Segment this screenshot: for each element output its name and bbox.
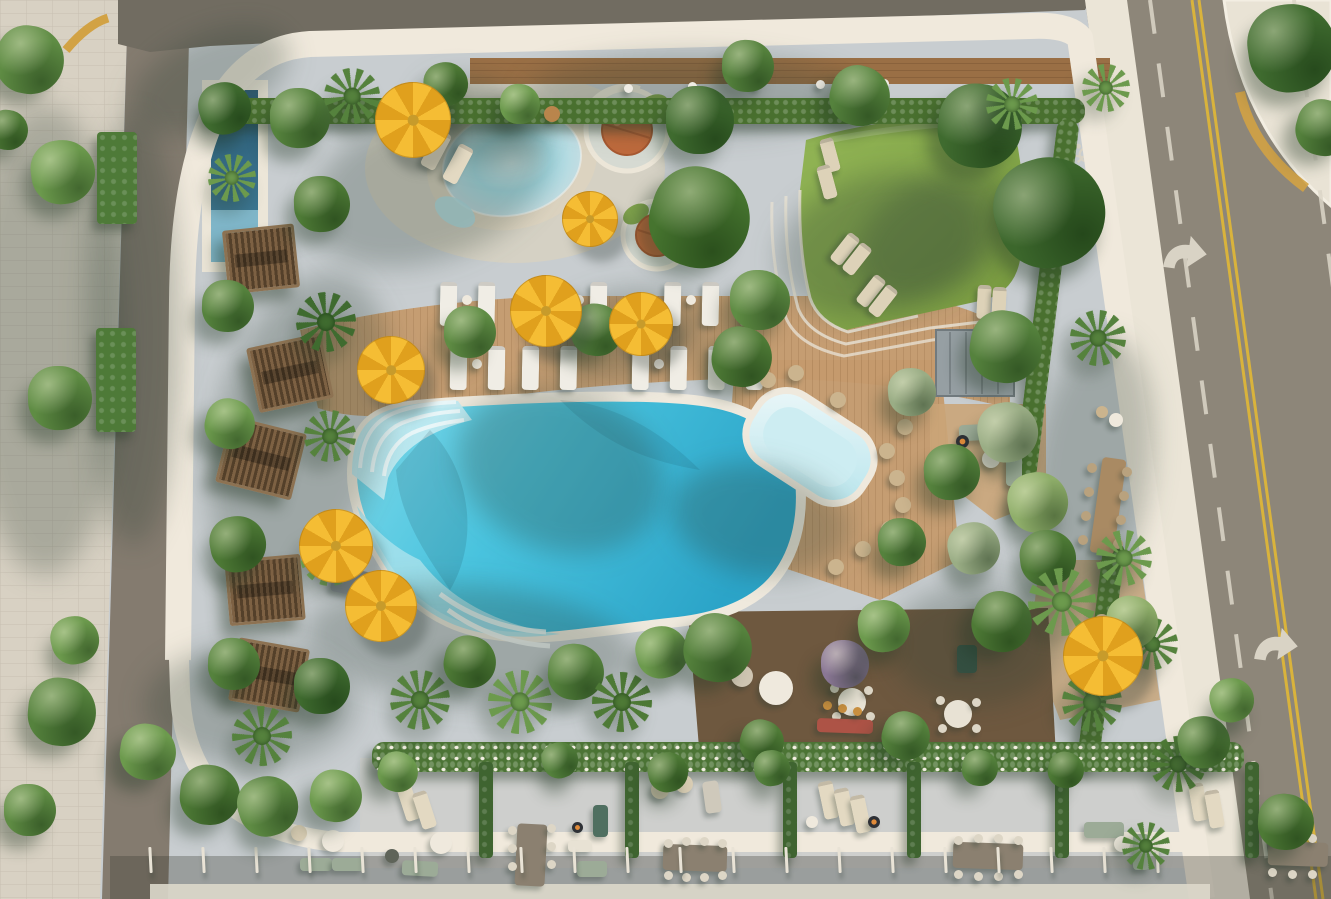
chair — [864, 686, 873, 695]
railing-post — [837, 847, 841, 873]
cabana-pergola — [228, 637, 310, 713]
chair — [974, 834, 983, 843]
sofa — [1084, 822, 1124, 838]
balcony-railing — [177, 600, 1204, 842]
chair — [664, 839, 673, 848]
tree-shadow — [405, 60, 555, 180]
palm-tree — [297, 523, 363, 589]
tree — [960, 748, 1001, 789]
tree — [419, 57, 472, 110]
tree — [307, 767, 366, 826]
sun-lounger — [819, 137, 841, 173]
center-line-yellow — [1199, 0, 1323, 899]
umbrella — [345, 570, 417, 642]
railing-post — [678, 847, 682, 873]
palm-tree — [487, 669, 553, 735]
tree — [922, 442, 982, 502]
chair — [879, 443, 895, 459]
chair — [855, 541, 871, 557]
chair — [1087, 463, 1097, 473]
sun-lounger — [669, 346, 687, 390]
tree — [0, 21, 69, 100]
sofa — [959, 423, 1012, 442]
bar-stool — [816, 80, 825, 89]
chair — [508, 844, 517, 853]
tree — [207, 637, 261, 691]
wood-lounge-deck — [930, 404, 1046, 520]
chair — [881, 521, 897, 537]
tree — [4, 784, 56, 836]
hedge-planter — [783, 762, 797, 858]
lawn-terrace — [772, 112, 1024, 356]
long-table — [514, 823, 547, 886]
palm-tree — [983, 75, 1042, 134]
tree — [499, 83, 542, 126]
chair — [1078, 535, 1088, 545]
chair — [1288, 870, 1297, 879]
vegetation-layer — [0, 0, 1331, 899]
tree — [201, 279, 255, 333]
chair — [994, 834, 1003, 843]
tree — [439, 631, 501, 693]
sun-lounger — [663, 282, 681, 326]
center-line-yellow — [1192, 0, 1316, 899]
sun-lounger — [589, 282, 607, 326]
tree — [1205, 673, 1259, 727]
tree — [1002, 466, 1073, 537]
hedge-layer — [0, 0, 1331, 899]
table — [686, 295, 696, 305]
chair — [675, 775, 693, 793]
bar-stool — [880, 79, 889, 88]
dining-soil-terrace — [688, 608, 1056, 760]
table — [731, 665, 753, 687]
lower-floor-shadow — [110, 856, 1331, 899]
sun-lounger — [449, 346, 467, 390]
fire-pit — [868, 816, 880, 828]
chair — [936, 696, 945, 705]
tree — [965, 306, 1047, 388]
chair — [830, 684, 839, 693]
cabana-pergola — [215, 416, 307, 501]
tree — [677, 607, 759, 689]
tree — [1103, 593, 1160, 650]
sun-lounger — [816, 164, 838, 200]
chair — [954, 836, 963, 845]
sofa — [332, 858, 364, 871]
tree — [821, 640, 870, 689]
chair — [664, 871, 673, 880]
chair — [718, 839, 727, 848]
asphalt-path — [102, 0, 190, 899]
tree — [1256, 792, 1316, 852]
chair — [830, 392, 846, 408]
sun-lounger — [439, 282, 457, 326]
chair — [700, 837, 709, 846]
tree-shadow — [86, 115, 181, 545]
chair — [1119, 491, 1129, 501]
table — [838, 688, 866, 716]
table — [806, 816, 818, 828]
umbrella — [510, 275, 582, 347]
daybed — [702, 780, 722, 814]
tree — [27, 365, 93, 431]
chair — [994, 872, 1003, 881]
tree — [752, 748, 793, 789]
umbrella — [375, 82, 451, 158]
round-lounge-pod — [619, 199, 698, 269]
tree-shadow — [287, 72, 573, 298]
tree — [537, 737, 583, 783]
railing-post — [943, 847, 947, 873]
hedge-planter — [1245, 762, 1259, 858]
long-table — [953, 842, 1024, 870]
tree — [443, 305, 497, 359]
sun-lounger — [745, 346, 763, 390]
tree-shadow — [176, 253, 423, 606]
tree — [294, 658, 350, 714]
palm-tree — [1078, 60, 1134, 116]
chair — [897, 419, 913, 435]
chair — [938, 724, 947, 733]
chair — [682, 873, 691, 882]
sun-lounger — [477, 282, 495, 326]
table — [944, 700, 972, 728]
wood-slat-wall — [470, 58, 1110, 84]
sun-lounger — [521, 346, 539, 390]
tree — [876, 516, 927, 567]
round-lounge-pod — [586, 86, 674, 171]
fire-pit — [956, 435, 969, 448]
sofa — [817, 718, 873, 734]
railing-post — [360, 847, 364, 873]
chair — [1268, 836, 1277, 845]
chair — [1081, 511, 1091, 521]
tree-shadow — [114, 3, 306, 156]
palm-tree — [382, 662, 459, 739]
parapet-wall — [178, 26, 1202, 899]
water-feature — [202, 80, 268, 272]
chair — [682, 837, 691, 846]
sun-lounger — [701, 282, 719, 326]
tree — [721, 39, 775, 93]
tree — [965, 585, 1039, 659]
splash-pad — [413, 78, 612, 248]
sand-path — [1030, 560, 1160, 720]
tree — [981, 143, 1120, 282]
chair — [1074, 630, 1090, 646]
chair — [544, 106, 560, 122]
street-top — [118, 0, 1090, 52]
tree — [567, 300, 626, 359]
tree-shadow — [533, 276, 716, 394]
sun-lounger — [1203, 789, 1224, 829]
chair — [1268, 868, 1277, 877]
palm-tree — [1093, 527, 1155, 589]
tree — [630, 620, 693, 683]
corner-steps — [352, 401, 472, 500]
tree — [1045, 749, 1088, 792]
tree — [735, 715, 789, 769]
tree — [942, 516, 1005, 579]
chair — [547, 842, 556, 851]
chair — [508, 862, 517, 871]
perimeter-hedge — [205, 98, 1085, 124]
railing-post — [307, 847, 311, 873]
sun-lounger — [849, 794, 872, 834]
tree — [637, 155, 763, 281]
palm-tree — [1123, 615, 1182, 674]
wall-hedge — [1076, 540, 1126, 771]
chair — [1308, 834, 1317, 843]
sun-lounger — [867, 283, 899, 318]
sofa — [577, 861, 607, 877]
table — [1114, 836, 1130, 852]
palm-tree — [1146, 732, 1211, 797]
tree-shadow — [1014, 328, 1170, 612]
sun-lounger — [829, 231, 861, 266]
railing-post — [1155, 847, 1159, 873]
aerial-rendering-pool-deck — [0, 0, 1331, 899]
tree — [644, 748, 691, 795]
sidewalk — [1085, 0, 1250, 899]
hedge-planter — [1055, 762, 1069, 858]
palm-tree — [316, 60, 388, 132]
tree — [707, 322, 777, 392]
long-table — [1268, 841, 1329, 867]
tree — [269, 87, 331, 149]
tree — [206, 512, 271, 577]
sun-lounger — [551, 282, 569, 326]
railing-post — [413, 847, 417, 873]
tree — [230, 768, 306, 844]
chair — [972, 698, 981, 707]
table — [730, 359, 740, 369]
fire-pit — [572, 822, 583, 833]
railing-post — [996, 847, 1000, 873]
sun-lounger — [420, 129, 453, 172]
long-table — [663, 844, 728, 872]
umbrella — [1063, 616, 1143, 696]
tree — [1242, 0, 1331, 98]
table — [1093, 631, 1107, 645]
cabana-pergola — [222, 223, 300, 294]
railing-post — [572, 847, 576, 873]
palm-tree — [202, 148, 262, 208]
sun-lounger — [487, 346, 505, 390]
palm-tree — [301, 407, 358, 464]
railing-post — [625, 847, 629, 873]
tree — [666, 86, 734, 154]
tree — [116, 720, 179, 783]
umbrella-layer — [0, 0, 1331, 899]
tree-shadow — [760, 150, 999, 340]
bar-stool — [853, 707, 862, 716]
palm-tree — [1119, 819, 1173, 873]
sun-lounger — [559, 346, 577, 390]
sun-lounger — [817, 780, 840, 820]
tree — [1289, 93, 1331, 162]
hedge-planter — [625, 762, 639, 858]
plaza — [0, 0, 128, 899]
umbrella — [609, 292, 673, 356]
chair — [1308, 870, 1317, 879]
tree — [1174, 712, 1234, 772]
tree — [546, 642, 606, 702]
tree — [200, 394, 261, 455]
long-table — [593, 805, 608, 837]
tree — [972, 396, 1043, 467]
tree — [886, 366, 937, 417]
tree — [876, 706, 936, 766]
table — [430, 832, 452, 854]
lane-line-white — [1150, 0, 1272, 899]
sun-lounger — [411, 790, 437, 831]
chair — [547, 860, 556, 869]
tree — [730, 270, 790, 330]
tree — [373, 747, 423, 797]
long-table — [1089, 457, 1126, 555]
tree — [27, 136, 98, 207]
wood-sun-deck — [300, 296, 1010, 416]
sun-lounger — [707, 346, 725, 390]
table — [1109, 413, 1123, 427]
bar-stool — [838, 704, 847, 713]
sun-lounger — [631, 346, 649, 390]
tree — [193, 76, 258, 141]
palm-tree — [1059, 669, 1125, 735]
palm-tree — [227, 701, 297, 771]
chair — [385, 849, 399, 863]
sun-lounger — [976, 285, 992, 320]
turn-arrow-icon — [1254, 625, 1300, 665]
tree-shadow — [434, 359, 686, 581]
tree-shadow — [662, 450, 858, 590]
umbrella — [562, 191, 618, 247]
sun-lounger — [442, 143, 475, 186]
chair — [972, 724, 981, 733]
tree — [934, 80, 1026, 172]
palm-tree — [1020, 560, 1104, 644]
bar-stool — [624, 84, 633, 93]
palm-tree — [590, 670, 654, 734]
daybed — [330, 565, 375, 599]
chair — [760, 372, 776, 388]
chair — [889, 470, 905, 486]
chair — [1116, 515, 1126, 525]
railing-post — [148, 847, 152, 873]
chair — [547, 824, 556, 833]
chair — [1014, 870, 1023, 879]
lane-line-white — [1294, 0, 1331, 899]
chair — [832, 712, 841, 721]
tree-shadow — [145, 645, 355, 765]
chair — [954, 870, 963, 879]
chair — [291, 825, 307, 841]
chair — [1113, 539, 1123, 549]
table — [982, 450, 1000, 468]
hedge-planter — [479, 762, 493, 858]
chair — [866, 712, 875, 721]
sofa — [300, 858, 332, 871]
chair — [1110, 634, 1126, 650]
railing-post — [784, 847, 788, 873]
sofa — [402, 860, 439, 877]
railing-post — [201, 847, 205, 873]
road — [1058, 0, 1331, 899]
chair — [700, 873, 709, 882]
amenity-deck — [0, 0, 1331, 899]
sofa — [1133, 834, 1149, 870]
railing-post — [254, 847, 258, 873]
tree-shadow — [300, 571, 639, 719]
tree — [855, 597, 912, 654]
chair — [788, 365, 804, 381]
chair — [718, 871, 727, 880]
table — [654, 359, 664, 369]
chair — [974, 872, 983, 881]
ground-plan — [0, 0, 1331, 899]
railing-post — [890, 847, 894, 873]
tactile-strip — [66, 18, 108, 50]
lower-floor-edge — [150, 884, 1210, 899]
bar-stool — [752, 81, 761, 90]
pergola-deck — [936, 330, 1014, 396]
palm-tree — [289, 285, 363, 359]
cabana-pergola — [246, 333, 334, 413]
tree — [0, 108, 30, 152]
kids-pool — [733, 378, 887, 517]
chair — [1096, 406, 1108, 418]
turn-arrow-icon — [1163, 233, 1209, 273]
shadow-layer — [0, 0, 1331, 899]
hedge-planter — [96, 328, 136, 432]
hedge-planter — [97, 132, 137, 224]
bar-stool — [688, 82, 697, 91]
bike-lane-icon — [1058, 141, 1094, 176]
railing-post — [1049, 847, 1053, 873]
sun-lounger — [395, 782, 421, 823]
tree — [25, 675, 100, 750]
table — [574, 295, 584, 305]
umbrella — [299, 509, 373, 583]
chair — [1084, 487, 1094, 497]
sun-lounger — [841, 241, 873, 276]
chair — [1014, 836, 1023, 845]
sun-lounger — [739, 282, 757, 326]
tree-shadow — [834, 145, 1036, 325]
sun-lounger — [833, 787, 856, 827]
table — [472, 359, 482, 369]
tree — [46, 611, 105, 670]
table — [322, 830, 344, 852]
tree — [823, 59, 897, 133]
wood-kids-deck — [730, 360, 960, 600]
railing-post — [466, 847, 470, 873]
umbrella — [357, 336, 425, 404]
chair — [1122, 467, 1132, 477]
shallow-shelf — [357, 506, 560, 637]
hedge-planter — [907, 762, 921, 858]
tree-shadow — [525, 55, 855, 135]
wall-hedge — [1009, 118, 1080, 518]
flowering-hedge — [372, 742, 1244, 772]
chair — [508, 826, 517, 835]
table — [462, 295, 472, 305]
railing-post — [731, 847, 735, 873]
chair — [1288, 834, 1297, 843]
chair — [895, 497, 911, 513]
